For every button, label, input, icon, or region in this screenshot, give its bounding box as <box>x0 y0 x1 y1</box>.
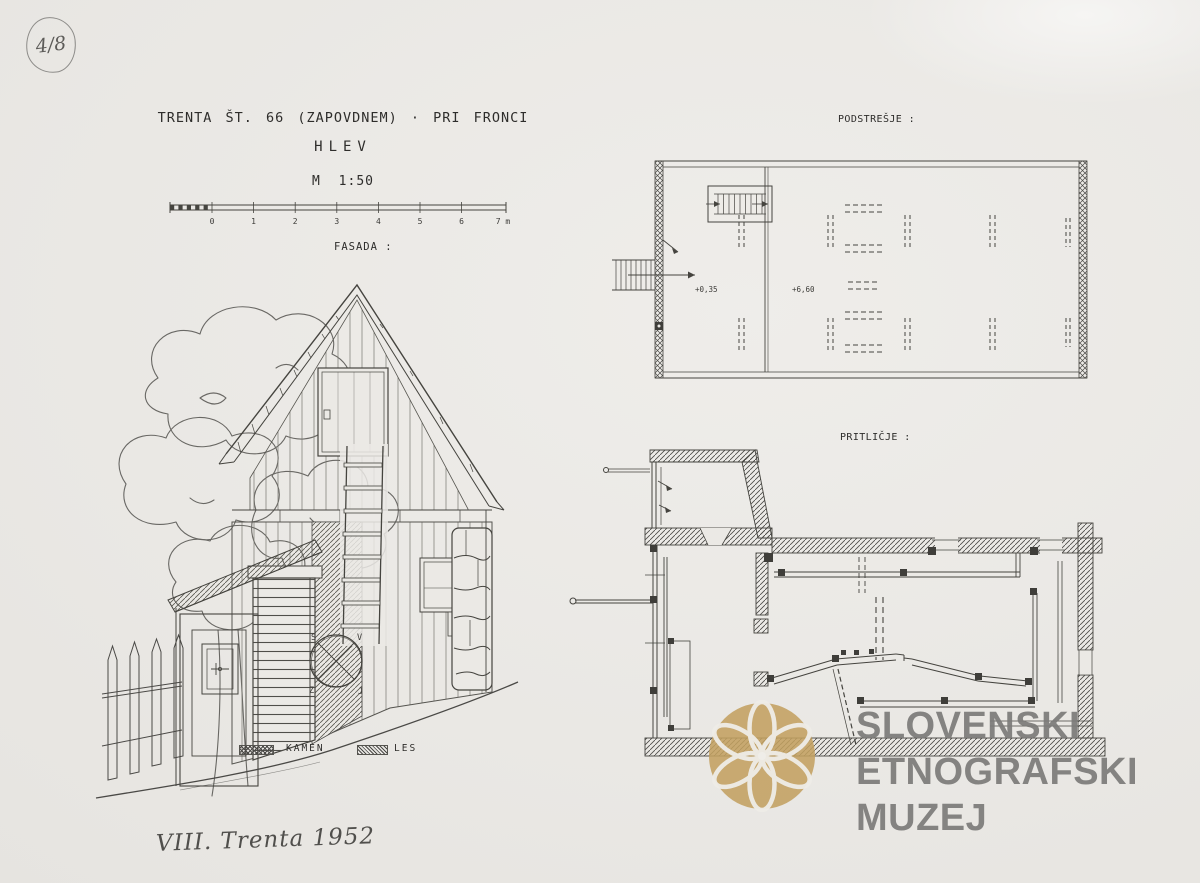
lower-partition <box>860 561 1092 726</box>
exterior-stair <box>612 260 695 290</box>
svg-text:4: 4 <box>376 217 381 226</box>
dashed-marks <box>859 557 883 660</box>
compass-letter-se: J <box>358 687 363 697</box>
watermark-line-3: MUZEJ <box>856 795 1138 841</box>
watermark-line-2: ETNOGRAFSKI <box>856 749 1138 795</box>
drawing-title: TRENTA ŠT. 66 (ZAPOVDNEM) · PRI FRONCI <box>112 110 574 126</box>
compass-letter-nw: S <box>311 633 316 643</box>
scale-bar: 0 1 2 3 4 5 6 7 m <box>163 199 523 229</box>
wood-walls <box>652 462 690 738</box>
compass-letter-sw: Z <box>309 686 314 696</box>
handwritten-note: VIII. Trenta 1952 <box>156 823 376 857</box>
attic-plan-label: PODSTREŠJE : <box>838 114 915 125</box>
legend-wood-label: LES <box>394 743 417 754</box>
elevation-label-right: +6,60 <box>792 285 815 294</box>
svg-text:2: 2 <box>293 217 298 226</box>
legend-stone-swatch <box>239 745 274 755</box>
ladder <box>340 444 388 646</box>
svg-text:3: 3 <box>334 217 339 226</box>
sheet-number: 4/8 <box>34 32 67 58</box>
elevation-label-left: +0,35 <box>695 285 718 294</box>
legend-wood-swatch <box>357 745 388 755</box>
compass-rose: S V Z J <box>303 626 373 700</box>
svg-text:7 m: 7 m <box>496 217 511 226</box>
svg-text:5: 5 <box>418 217 423 226</box>
svg-text:6: 6 <box>459 217 464 226</box>
beam-marks <box>845 205 885 352</box>
elevation-labels: +0,35 +6,60 <box>695 285 815 294</box>
sheet-number-badge: 4/8 <box>23 14 79 76</box>
ground-plan-label: PRITLIČJE : <box>840 432 911 443</box>
post-marks <box>739 215 1070 350</box>
gable-door <box>318 368 388 456</box>
attic-plan: +0,35 +6,60 <box>600 148 1100 398</box>
scanned-drawing-sheet: 4/8 TRENTA ŠT. 66 (ZAPOVDNEM) · PRI FRON… <box>0 0 1200 883</box>
facade-label: FASADA : <box>334 241 393 253</box>
stone-wall-left <box>655 161 663 378</box>
svg-text:0: 0 <box>210 217 215 226</box>
scale-text: M 1:50 <box>112 174 574 189</box>
watermark-line-1: SLOVENSKI <box>856 703 1138 749</box>
svg-text:1: 1 <box>251 217 256 226</box>
fence <box>102 635 183 780</box>
compass-letter-ne: V <box>357 633 362 643</box>
facade-drawing <box>80 278 530 810</box>
stone-wall-right <box>1079 161 1087 378</box>
feed-rack <box>774 553 1020 577</box>
museum-watermark: SLOVENSKI ETNOGRAFSKI MUZEJ <box>856 703 1138 841</box>
legend-stone-label: KAMEN <box>286 743 325 754</box>
title-block: TRENTA ŠT. 66 (ZAPOVDNEM) · PRI FRONCI H… <box>112 110 574 189</box>
museum-logo-icon <box>706 700 818 812</box>
scale-bar-tick-labels: 0 1 2 3 4 5 6 7 m <box>210 217 511 226</box>
drawing-subtitle: HLEV <box>112 139 574 155</box>
